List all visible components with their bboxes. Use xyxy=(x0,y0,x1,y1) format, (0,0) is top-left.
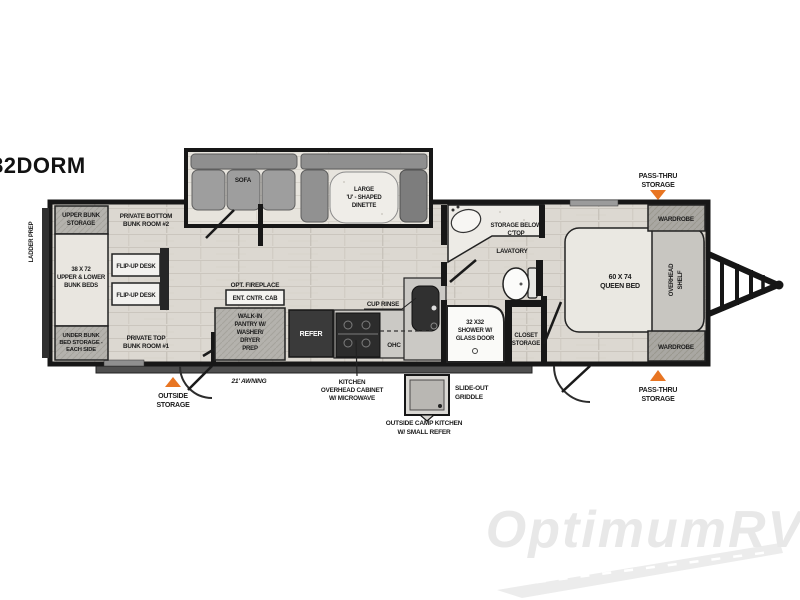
toilet xyxy=(503,268,529,300)
bath-wall-right-bottom xyxy=(536,260,543,296)
floorplan-page: 282DORM LADDER PREP SOFA xyxy=(0,0,800,600)
shower-label: GLASS DOOR xyxy=(456,336,495,342)
lavatory-label: LAVATORY xyxy=(496,248,528,255)
rear-cap xyxy=(42,208,49,358)
wardrobe-top-label: WARDROBE xyxy=(658,216,694,223)
pantry-label: WALK-IN xyxy=(238,314,262,320)
outside-storage-label: OUTSIDE xyxy=(158,393,188,400)
faucet xyxy=(432,306,437,311)
overhead-shelf-label: OVERHEAD xyxy=(669,263,675,296)
closet-wall-top xyxy=(505,300,547,307)
floorplan-drawing: 282DORM LADDER PREP SOFA xyxy=(0,0,800,600)
sofa-label: SOFA xyxy=(235,177,252,184)
bunkroom-window xyxy=(104,360,144,366)
pass-thru-top-label: STORAGE xyxy=(641,182,675,189)
closet-storage-label: CLOSET xyxy=(514,333,538,339)
shower-wall-right xyxy=(505,300,512,362)
overhead-shelf-label: SHELF xyxy=(678,270,684,289)
shower-label: SHOWER W/ xyxy=(458,328,493,334)
kitchen-ohc-label: OVERHEAD CABINET xyxy=(321,387,384,394)
kitchen-ohc-label: W/ MICROWAVE xyxy=(329,395,375,402)
opt-fireplace-label: OPT. FIREPLACE xyxy=(231,282,280,289)
queen-bed-label: QUEEN BED xyxy=(600,283,640,290)
bunk-beds-label: UPPER & LOWER xyxy=(57,275,106,281)
dinette-label: LARGE xyxy=(354,187,374,193)
watermark: OptimumRV xyxy=(486,501,800,598)
pass-thru-bottom-arrow-icon xyxy=(650,370,666,381)
awning-label: 21' AWNING xyxy=(230,378,266,385)
outside-storage-arrow-icon xyxy=(165,377,181,387)
upper-bunk-storage-label: STORAGE xyxy=(67,221,95,227)
model-title: 282DORM xyxy=(0,153,86,178)
flip-up-desk-2-label: FLIP-UP DESK xyxy=(116,293,156,299)
pass-thru-top-label: PASS-THRU xyxy=(639,173,678,180)
kitchen-ohc-label: KITCHEN xyxy=(339,379,366,386)
cup-rinse-label: CUP RINSE xyxy=(367,301,399,308)
ent-cntr-cab-label: ENT. CNTR. CAB xyxy=(233,296,279,302)
ladder-prep-label: LADDER PREP xyxy=(29,221,35,262)
main-entry-door xyxy=(562,366,590,392)
bunk-beds-label: BUNK BEDS xyxy=(64,283,98,289)
dinette-label: DINETTE xyxy=(352,203,376,209)
bunk-wall-top xyxy=(258,204,263,246)
closet-storage-label: STORAGE xyxy=(512,341,540,347)
pass-thru-bottom-label: STORAGE xyxy=(641,396,675,403)
outside-storage-label: STORAGE xyxy=(156,402,190,409)
range-stove xyxy=(336,313,380,357)
pass-thru-top-arrow-icon xyxy=(650,190,666,200)
upper-bunk-storage-label: UPPER BUNK xyxy=(62,213,101,219)
bath-wall-door-stub xyxy=(441,262,447,286)
flip-up-desk-1-label: FLIP-UP DESK xyxy=(116,264,156,270)
camp-kitchen-label: W/ SMALL REFER xyxy=(397,429,451,436)
bunk-room-2-label: BUNK ROOM #2 xyxy=(123,221,170,228)
queen-bed-label: 60 X 74 xyxy=(609,274,632,281)
upper-bunk-storage xyxy=(55,206,108,234)
bath-wall-right-top xyxy=(539,205,545,238)
under-bunk-storage-label: EACH SIDE xyxy=(66,347,96,353)
under-bunk-storage-label: BED STORAGE - xyxy=(59,340,103,346)
pantry-label: PANTRY W/ xyxy=(234,322,266,328)
pantry-label: PREP xyxy=(242,346,258,352)
desk-divider-wall xyxy=(160,248,169,310)
u-dinette: LARGE 'U' - SHAPED DINETTE xyxy=(301,154,427,223)
pass-thru-bottom-label: PASS-THRU xyxy=(639,387,678,394)
closet-wall-right xyxy=(541,296,547,362)
pantry-label: DRYER xyxy=(240,338,261,344)
bunk-room-2-label: PRIVATE BOTTOM xyxy=(120,213,172,220)
sofa: SOFA xyxy=(191,154,297,210)
sofa-dinette-slideout: SOFA LARGE 'U' - SHAPED DINETTE xyxy=(186,150,431,226)
wardrobe-bottom-label: WARDROBE xyxy=(658,344,694,351)
storage-below-label: C'TOP xyxy=(508,231,525,237)
ohc-label: OHC xyxy=(387,342,401,349)
refer-label: REFER xyxy=(300,331,323,338)
bunk-room-1-label: BUNK ROOM #1 xyxy=(123,343,170,350)
shower-label: 32 X32 xyxy=(466,320,485,326)
under-bunk-storage-label: UNDER BUNK xyxy=(63,333,101,339)
watermark-text: OptimumRV xyxy=(486,501,800,559)
bunk-beds-label: 38 X 72 xyxy=(71,267,91,273)
pantry-label: WASHER/ xyxy=(237,330,264,336)
hitch-coupler xyxy=(775,281,784,290)
camp-kitchen-label: OUTSIDE CAMP KITCHEN xyxy=(386,420,463,427)
bath-wall-left xyxy=(441,205,447,245)
bunk-room-1-label: PRIVATE TOP xyxy=(127,335,166,342)
storage-below-label: STORAGE BELOW xyxy=(491,223,542,229)
bedroom-window xyxy=(570,200,618,206)
dinette-label: 'U' - SHAPED xyxy=(346,195,382,201)
slide-out-griddle-label: GRIDDLE xyxy=(455,394,484,401)
slide-out-griddle-label: SLIDE-OUT xyxy=(455,385,488,392)
hitch-frame xyxy=(704,252,784,316)
